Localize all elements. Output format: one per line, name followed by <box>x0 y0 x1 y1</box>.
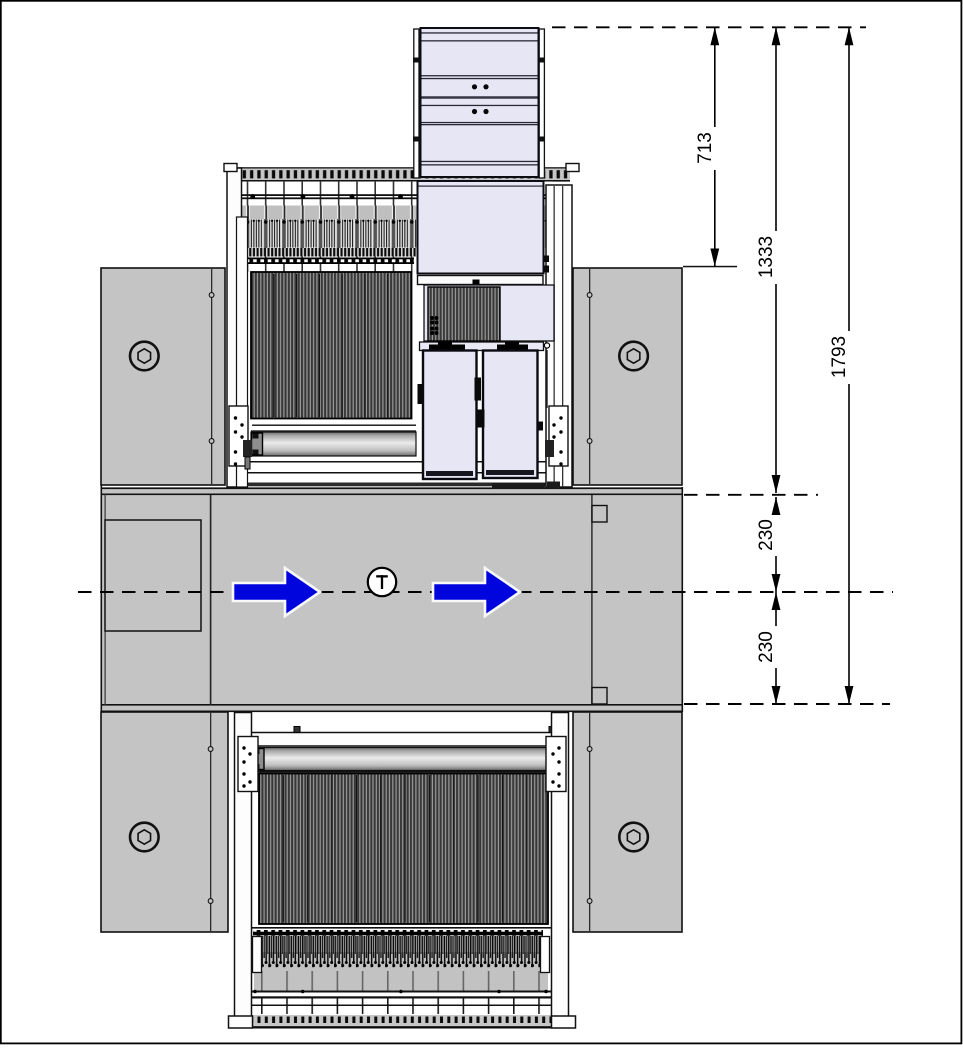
svg-text:230: 230 <box>756 519 777 551</box>
svg-text:1793: 1793 <box>829 336 850 378</box>
svg-text:1333: 1333 <box>756 236 777 278</box>
svg-text:713: 713 <box>695 132 716 164</box>
svg-text:230: 230 <box>756 631 777 663</box>
